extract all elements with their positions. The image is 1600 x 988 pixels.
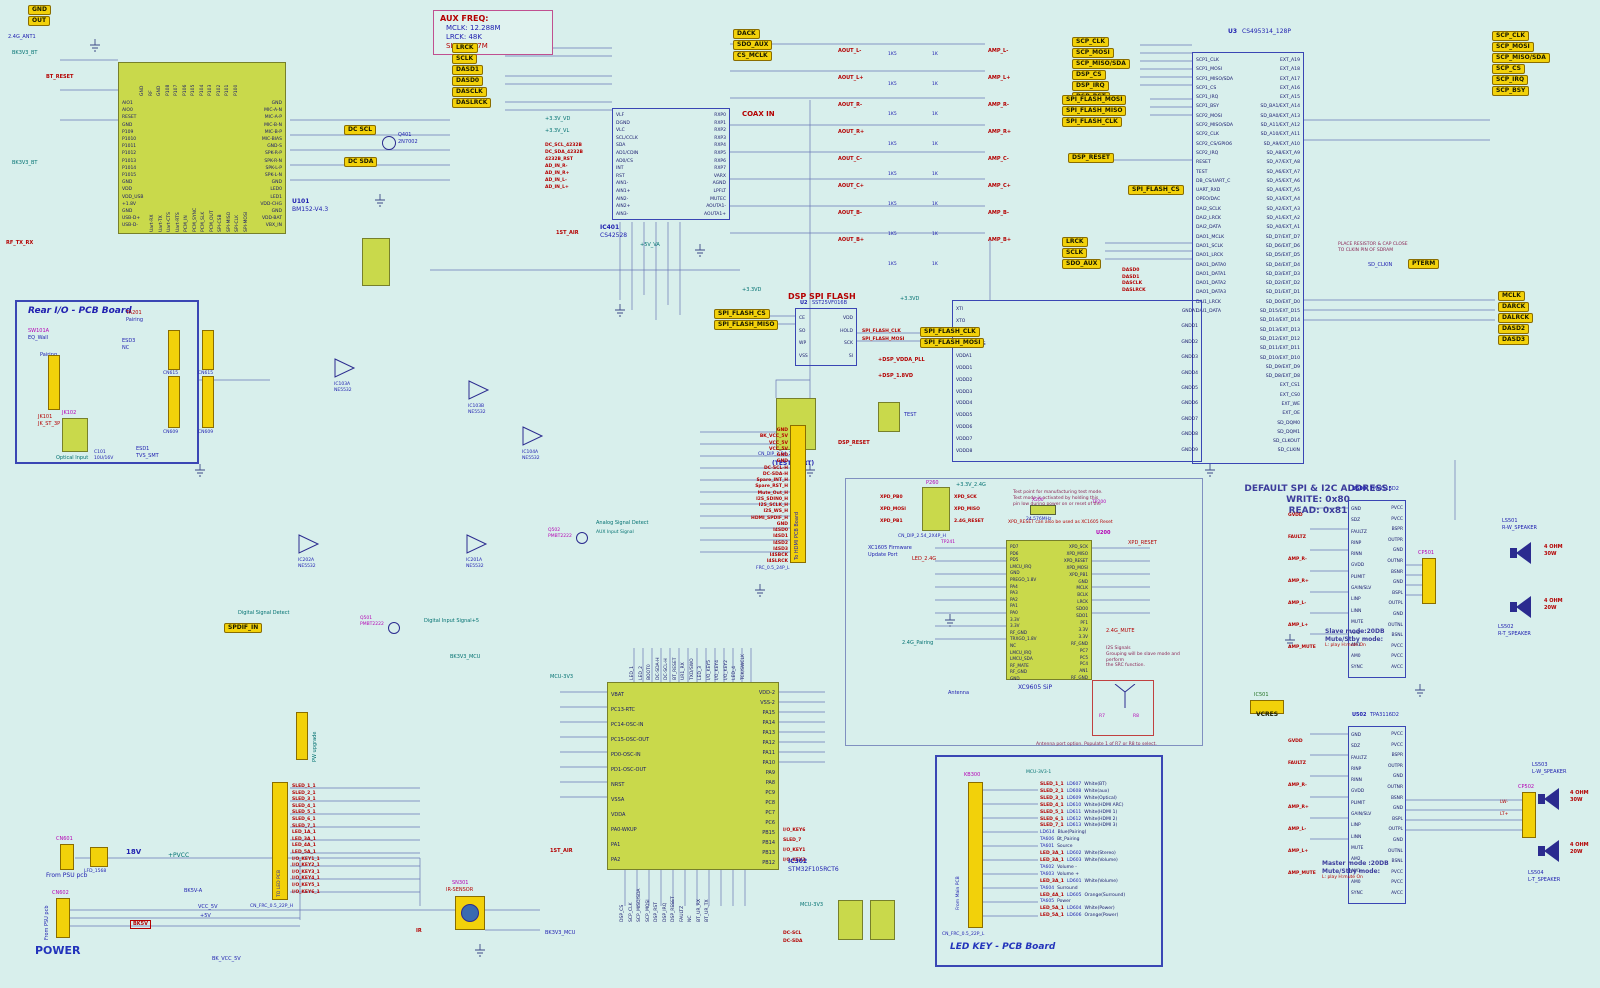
net-label: AMP_L+ <box>988 65 1011 92</box>
codec-pin: RXP3 <box>668 135 726 143</box>
xpd-reset-label: XPD_RESET <box>1128 540 1157 547</box>
bt-pin: RF <box>149 66 154 96</box>
ledkey-row: LED_5A_1LD606Orange(Power) <box>1040 913 1125 920</box>
audio-net-tags: LRCKSCLKDASD1DASD0DASCLKDASLRCK <box>452 42 491 109</box>
flash-part: SST25VF016B <box>812 300 847 307</box>
mcu-pin: PD1-OSC-OUT <box>611 763 649 778</box>
value-label: 1K5 <box>888 40 897 70</box>
net-tag: LRCK <box>1062 237 1088 247</box>
field-label: White(Volume) <box>1084 858 1117 863</box>
dsp-pin: SD_A6/EXT_A7 <box>1196 168 1300 177</box>
aux-freq-note: AUX FREQ: MCLK: 12.288M LRCK: 48K SLCK:3… <box>433 10 553 55</box>
field-ref: TA605 <box>1040 899 1054 904</box>
rf-pin: 3.3V <box>1010 627 1088 634</box>
value-label: 1K <box>932 190 938 220</box>
dsp-pin: VDDA1 <box>956 351 986 363</box>
flash-right-tags: SPI_FLASH_CLKSPI_FLASH_MOSI <box>920 326 984 349</box>
mcu-bk-label: BK3V3_MCU <box>450 654 480 661</box>
optical-jack <box>62 418 88 452</box>
bt-pin: GND <box>122 122 144 129</box>
bt-pin: P103 <box>208 66 213 96</box>
rf-pin: RF_GND <box>1010 641 1088 648</box>
bt-pin: GND-S <box>200 143 282 150</box>
codec-right-pins: RXP0RXP1RXP2RXP3RXP4RXP5RXP6RXP7VARXAGND… <box>668 112 726 218</box>
hdmi-conn: To HDMI PCB Board <box>790 425 806 563</box>
bt-pin: PCM_SYNC <box>193 196 198 232</box>
flash-right-pins: VDDHOLDSCKSI <box>799 313 853 363</box>
net-vlabel: BT_UR_RX <box>697 874 702 922</box>
field-ref: TA602 <box>1040 865 1054 870</box>
net-label: LED_4A_1 <box>292 843 320 850</box>
bt-rftxrx-label: RF_TX_RX <box>6 240 33 247</box>
mcu-pin: PA10 <box>697 758 775 768</box>
slave-mode-note: Slave mode:20DB Mute/Stby mode: L: play … <box>1325 628 1385 649</box>
amp-pin: BSNR <box>1351 794 1403 805</box>
i2s-note-3: the SRC function. <box>1106 663 1198 669</box>
amp-pin: BSPR <box>1351 525 1403 536</box>
dsp-audio-tags: LRCKSCLKSDO_AUX <box>1062 236 1101 270</box>
field-ld: LD606 <box>1067 913 1082 918</box>
field-label: Orange(Power) <box>1084 913 1118 918</box>
codec-pin: AIN2+ <box>616 203 638 211</box>
ls503-w: 30W <box>1570 797 1582 804</box>
net-tag: SPI_FLASH_MISO <box>1062 106 1126 116</box>
bt-pin: SPI-CLK <box>235 196 240 232</box>
bt-top-tags: GND OUT <box>28 4 51 27</box>
value-label: 1K <box>932 100 938 130</box>
net-vlabel: LED_2 <box>639 634 644 680</box>
ls503-ref: LS503 <box>1532 762 1548 769</box>
transistor-icon <box>388 622 400 634</box>
bt-pin: P100 <box>234 66 239 96</box>
amp-pin: OUTPL <box>1351 825 1403 836</box>
antenna-note: Antenna port option. Populate 1 of R7 or… <box>1036 742 1206 748</box>
bt-pin: USB-D- <box>122 222 144 229</box>
ta201-ref: TA201 <box>126 310 142 317</box>
net-label: 4232B_RST <box>545 156 583 163</box>
mcu-pin: PA8 <box>697 778 775 788</box>
net-tag: LRCK <box>452 43 478 53</box>
mcu-pin: PC14-OSC-IN <box>611 718 649 733</box>
dsp-right-pins: EXT_A19EXT_A18EXT_A17EXT_A16EXT_A15SD_BA… <box>1196 56 1300 456</box>
small-conn-2 <box>870 900 895 940</box>
c101-val: 10U/16V <box>94 456 113 462</box>
net-label: I/O_KEY4_1 <box>292 876 320 883</box>
mcu-pin: VDDA <box>611 808 649 823</box>
net-tag: PTERM <box>1408 259 1439 269</box>
bt-left-pins: AIO1AIO0RESETGNDP109P1010P1011P1012P1013… <box>122 100 144 230</box>
mcu-pin: PB13 <box>697 848 775 858</box>
opamp-part: NE5532 <box>298 564 320 570</box>
dsp-pin: SD_D4/EXT_D4 <box>1196 261 1300 270</box>
field-ld: LD602 <box>1067 851 1082 856</box>
bt-pin: MIC-B-N <box>200 122 282 129</box>
codec-pin: VARX <box>668 173 726 181</box>
net-vlabel: BOOT0 <box>647 634 652 680</box>
ir-ref: SN301 <box>452 880 468 887</box>
rf-pin: RF_GND <box>1010 675 1088 682</box>
net-tag: OUT <box>28 16 50 26</box>
amp-net-labels: AMP_L-AMP_L+AMP_R-AMP_R+AMP_C-AMP_C+AMP_… <box>988 38 1011 254</box>
field-net: SLED_6_1 <box>1040 817 1064 822</box>
value-label: 1K <box>932 250 938 280</box>
p260-conn-part: CN_DIP_2.54_2X4P_H <box>898 534 946 540</box>
mcu-pin: PA15 <box>697 708 775 718</box>
dsp-pin: EXT_A17 <box>1196 75 1300 84</box>
tp200-label: TP200 <box>1092 500 1106 506</box>
net-vlabel: LED_1 <box>630 634 635 680</box>
field-label: White(HDMI 3) <box>1084 823 1117 828</box>
field-label: Surround <box>1057 886 1078 891</box>
dsp-pin: SD_D9/EXT_D9 <box>1196 363 1300 372</box>
codec-pin: RXP6 <box>668 158 726 166</box>
cn615-conn-main <box>202 330 214 370</box>
dsp-pin: SD_BA0/EXT_A13 <box>1196 112 1300 121</box>
value-label: 1K5 <box>888 220 897 250</box>
field-label: Source <box>1057 844 1072 849</box>
rf-pin: PC4 <box>1010 661 1088 668</box>
r8-ref: R8 <box>1133 714 1153 720</box>
net-tag: SCP_MISO/SDA <box>1072 59 1130 69</box>
field-ld: LD608 <box>1067 789 1082 794</box>
sd-clkin-label: SD_CLKIN <box>1368 262 1392 269</box>
net-label: 2.4G_RESET <box>954 516 984 528</box>
dsp-pin: EXT_CS0 <box>1196 391 1300 400</box>
net-vlabel: DC-SDA-H <box>656 634 661 680</box>
codec-ref: IC401 <box>600 224 619 232</box>
dsp-pin: SD_D15/EXT_D15 <box>1196 307 1300 316</box>
net-label: AOUT_L+ <box>838 65 864 92</box>
net-label: LED_5A_1 <box>292 850 320 857</box>
aux-freq-lrck: LRCK: 48K <box>440 33 546 42</box>
rf-pin: XPD_MISO <box>1010 551 1088 558</box>
field-net: LED_3A_1 <box>1040 858 1064 863</box>
amp1-nets: GVDDFAULTZAMP_R-AMP_R+AMP_L-AMP_L+AMP_MU… <box>1288 505 1316 659</box>
esd1-val: TVS_SMT <box>136 453 159 460</box>
ls503-ohm: 4 OHM <box>1570 790 1589 797</box>
field-label: Volume + <box>1057 872 1079 877</box>
net-label: SPI_FLASH_MOSI <box>862 336 904 344</box>
amp-pin: BSNR <box>1351 568 1403 579</box>
net-label: SLED_1_1 <box>292 784 320 791</box>
field-ref: TA604 <box>1040 886 1054 891</box>
mcu-pin: VBAT <box>611 688 649 703</box>
speaker-icon <box>1510 542 1534 564</box>
q501-ref: Q501 <box>360 616 372 622</box>
net-label: AOUT_R+ <box>838 119 864 146</box>
cp502-ref: CP502 <box>1518 784 1534 791</box>
mcu-right-pins: VDD-2VSS-2PA15PA14PA13PA12PA11PA10PA9PA8… <box>697 688 775 868</box>
codec-pin: AGND <box>668 180 726 188</box>
speaker-icon <box>1538 788 1562 810</box>
net-label: I/O_KEY6 <box>783 826 805 836</box>
kb300-conn <box>968 782 983 928</box>
pw-upgrade-label: PW upgrade <box>312 712 319 762</box>
jk101-part: JK_ST_3P <box>38 421 60 428</box>
ledkey-row: SLED_4_1LD610White(HDMI ARC) <box>1040 803 1125 810</box>
amp-pin: GND <box>1351 610 1403 621</box>
value-label: 1K <box>932 160 938 190</box>
rf-33v-label: +3.3V_2.4G <box>956 482 986 489</box>
net-label: XPD_SCK <box>954 492 984 504</box>
jack-jk101 <box>48 355 60 410</box>
dsp-pin: GNDA1 <box>1100 304 1198 319</box>
bt-pin: P105 <box>191 66 196 96</box>
net-label: AMP_L+ <box>1288 841 1316 863</box>
net-label: GVDD <box>1288 731 1316 753</box>
net-label: AMP_MUTE <box>1288 863 1316 885</box>
net-tag: DSP_CS <box>1072 70 1106 80</box>
led-conn-signals: SLED_1_1SLED_2_1SLED_3_1SLED_4_1SLED_5_1… <box>292 784 320 896</box>
amp-pin: BSPL <box>1351 589 1403 600</box>
codec-pin: VLF <box>616 112 638 120</box>
field-label: Volume - <box>1057 865 1077 870</box>
ir-sig: IR <box>416 928 422 935</box>
net-label: I/O_KEY6_1 <box>292 890 320 897</box>
field-ld: LD603 <box>1067 858 1082 863</box>
bt-pin: USB-D+ <box>122 215 144 222</box>
dsp-pin: SD_CLKOUT <box>1196 437 1300 446</box>
ls501-ohm: 4 OHM <box>1544 544 1563 551</box>
bt-pin: GND <box>140 66 145 96</box>
amp-pin: OUTNL <box>1351 847 1403 858</box>
q401-part: 2N7002 <box>398 139 418 146</box>
cp501-conn <box>1422 558 1436 604</box>
net-tag: SCP_MOSI <box>1492 42 1534 52</box>
bt-top-pins: GNDRFGNDP108P107P106P105P104P103P102P101… <box>140 66 242 96</box>
field-ld: LD609 <box>1067 796 1082 801</box>
bt-pin: SPI-MISO <box>227 196 232 232</box>
u502-ref: U502 <box>1352 712 1367 719</box>
net-bkvcc5: BK_VCC_5V <box>212 956 241 963</box>
dsp-pin: SD_A2/EXT_A3 <box>1196 205 1300 214</box>
ledkey-row: TA603Volume + <box>1040 872 1125 879</box>
ls502-ohm: 4 OHM <box>1544 598 1563 605</box>
dsp-pin: SD_D11/EXT_D11 <box>1196 344 1300 353</box>
scp2-tags: SCP_CLKSCP_MOSISCP_MISO/SDASCP_CSSCP_IRQ… <box>1492 30 1550 97</box>
net-label: SLED_5_1 <box>292 810 320 817</box>
amp-pin: PVCC <box>1351 504 1403 515</box>
value-label: 1K <box>932 220 938 250</box>
mcu-pin: PA14 <box>697 718 775 728</box>
net-tag: DC SCL <box>344 125 376 135</box>
value-label: 1K5 <box>888 100 897 130</box>
net-label: XPD_PB1 <box>880 516 906 528</box>
field-net: SLED_1_1 <box>1040 782 1064 787</box>
net-label: LED_1A_1 <box>292 830 320 837</box>
field-net: LED_3A_1 <box>1040 851 1064 856</box>
dsp-pin: GNDD7 <box>1100 412 1198 427</box>
bt-pin: PCM_IN <box>184 196 189 232</box>
cn615-conn <box>168 330 180 370</box>
net-tag: SCLK <box>452 54 477 64</box>
flash-left-tags: SPI_FLASH_CSSPI_FLASH_MISO <box>714 308 778 331</box>
bt-bottom-pins: Uart-RXUart-TXUart-CTSUart-RTSPCM_INPCM_… <box>150 196 252 232</box>
opamp-icon <box>466 534 488 554</box>
bt-pin: MIC-A-P <box>200 114 282 121</box>
bt-pin: SPK-R-P <box>200 150 282 157</box>
bt-pin: AIO1 <box>122 100 144 107</box>
transistor-icon <box>382 136 396 150</box>
codec-pin: RST <box>616 173 638 181</box>
bt-pin: P1010 <box>122 136 144 143</box>
net-label: AOUT_C- <box>838 146 864 173</box>
net-vlabel: LED_3 <box>698 634 703 680</box>
rf-pin: GND <box>1010 579 1088 586</box>
bt-pin: VDD <box>122 186 144 193</box>
dsp-pin: SD_D14/EXT_D14 <box>1196 316 1300 325</box>
net-label: SPI_FLASH_CLK <box>862 328 904 336</box>
codec-top-tags: DACKSDO_AUXCS_MCLK <box>733 28 772 62</box>
bt-pin: P109 <box>122 129 144 136</box>
net-tag: SPI_FLASH_CLK <box>1062 117 1122 127</box>
net-label: AMP_R+ <box>988 119 1011 146</box>
mcu-pin: PC8 <box>697 798 775 808</box>
dsp-pin: EXT_A18 <box>1196 65 1300 74</box>
codec-net: +3.3V_VL <box>545 128 569 135</box>
cn601-conn <box>60 844 74 870</box>
dsp-ref: U3 <box>1228 28 1237 36</box>
dsp-pin: SD_A4/EXT_A5 <box>1196 186 1300 195</box>
net-label: I/O_KEY5_1 <box>292 883 320 890</box>
net-vlabel: DSP_RST <box>654 874 659 922</box>
codec-pin: RXP4 <box>668 142 726 150</box>
led-conn-label: TO LED PCB <box>277 787 283 897</box>
mcu-top-signals: LED_1LED_2BOOT0DC-SDA-HDC-SCL-HBT_RESETU… <box>630 634 749 680</box>
net-label: AMP_C+ <box>988 173 1011 200</box>
bt-ref: U101 <box>292 198 309 206</box>
dsp-pin: SD_D3/EXT_D3 <box>1196 270 1300 279</box>
net-label: AMP_L+ <box>1288 615 1316 637</box>
opamp-4: IC201A NE5532 <box>466 534 488 569</box>
net-vlabel: BT_RESET <box>673 634 678 680</box>
master-mode-line: L: play H:mute On <box>1322 875 1389 881</box>
fw-port-label-2: Update Port <box>868 552 898 559</box>
amp-pin: AVCC <box>1351 889 1403 900</box>
dsp-pin: SD_A11/EXT_A12 <box>1196 121 1300 130</box>
net-tag: DASLRCK <box>452 98 491 108</box>
field-net: LED_5A_1 <box>1040 906 1064 911</box>
res-values-2: 1K1K1K1K1K1K1K1K <box>932 40 938 280</box>
ledkey-row: LED_3A_1LD602White(Stereo) <box>1040 851 1125 858</box>
dsp-pin: EXT_CS1 <box>1196 381 1300 390</box>
u500-ref: U500 <box>1352 486 1367 493</box>
dsp-pin: VDDD4 <box>956 398 986 410</box>
ledkey-rows: SLED_1_1LD607White(BT)SLED_2_1LD608White… <box>1040 782 1125 920</box>
net-tag: DASD0 <box>452 76 483 86</box>
amp-pin: PVCC <box>1351 652 1403 663</box>
value-label: 1K5 <box>888 250 897 280</box>
bt-pin: P107 <box>174 66 179 96</box>
net-label: AMP_R- <box>1288 549 1316 571</box>
bt-pin: P1012 <box>122 150 144 157</box>
flash-right-nets: SPI_FLASH_CLKSPI_FLASH_MOSI <box>862 328 904 344</box>
field-ld: LD611 <box>1067 810 1082 815</box>
opamp-icon <box>468 380 490 400</box>
dsp-pin: SD_A8/EXT_A9 <box>1196 149 1300 158</box>
net-tag: DASD3 <box>1498 335 1529 345</box>
net-vlabel: BT_UR_TX <box>705 874 710 922</box>
res-values-1: 1K51K51K51K51K51K51K51K5 <box>888 40 897 280</box>
amp-pin: OUTPL <box>1351 599 1403 610</box>
hdmi-conn-part: FRC_0.5_24P_L <box>756 566 790 572</box>
net-label: AD_IN_L+ <box>545 184 583 191</box>
dsp-pin: SD_D2/EXT_D2 <box>1196 279 1300 288</box>
ir-sensor <box>455 896 485 930</box>
mute24g-label: 2.4G_MUTE <box>1106 628 1135 635</box>
rf-right-pins: XPD_SCKXPD_MISOXPD_RESETXPD_MOSIXPD_PB1G… <box>1010 544 1088 682</box>
p260-left-signals: XPD_PB0XPD_MOSIXPD_PB1 <box>880 492 906 528</box>
led-conn-part: CN_FRC_0.5_22P_H <box>250 904 293 910</box>
sw101a-ref: SW101A <box>28 328 49 335</box>
mcu-pin: PB12 <box>697 858 775 868</box>
ir-part: IR-SENSOR <box>446 887 473 894</box>
codec-pin: SDA <box>616 142 638 150</box>
net-label: AMP_L- <box>1288 819 1316 841</box>
field-ld: LD612 <box>1067 817 1082 822</box>
rf-pin: PC5 <box>1010 655 1088 662</box>
bt-part: BM152-V4.3 <box>292 206 328 214</box>
net-vlabel: UR1_RX <box>681 634 686 680</box>
x200-freq: 24.576MHz <box>1026 517 1051 523</box>
dc-scl-tag: DC SCL <box>344 124 376 136</box>
cn609-label-main: CN609 <box>198 430 213 436</box>
spi-flash-cs-tag: SPI_FLASH_CS <box>1128 184 1184 196</box>
speaker-icon <box>1538 840 1562 862</box>
jk101-ref: JK101 <box>38 414 52 421</box>
field-net: LED_4A_1 <box>1040 893 1064 898</box>
mcu-pin: PB15 <box>697 828 775 838</box>
dsp-pin: SD_DQM1 <box>1196 428 1300 437</box>
slave-mode-line: L: play H:mute On <box>1325 643 1385 649</box>
dsp-pin: GNDD8 <box>1100 427 1198 442</box>
codec-pin: AIN3- <box>616 211 638 219</box>
field-ld: LD605 <box>1067 893 1082 898</box>
rf-pin: AN1 <box>1010 668 1088 675</box>
field-label: White(Stereo) <box>1084 851 1115 856</box>
field-net: SLED_7_1 <box>1040 823 1064 828</box>
dsp-pin: SD_BA1/EXT_A14 <box>1196 102 1300 111</box>
net-label: AOUT_B- <box>838 200 864 227</box>
codec-part: CS42528 <box>600 232 627 240</box>
ls504-ohm: 4 OHM <box>1570 842 1589 849</box>
pwr-label: +3.3VD <box>742 287 761 294</box>
bt-pin: GND <box>122 208 144 215</box>
net-tag: SPI_FLASH_CLK <box>920 327 980 337</box>
net-label: AD_IN_R- <box>545 163 583 170</box>
dsp-pin: VDDD5 <box>956 410 986 422</box>
net-tag: GND <box>28 5 51 15</box>
lt-net: LT+ <box>1500 812 1508 818</box>
net-label: AMP_MUTE <box>1288 637 1316 659</box>
pwr-label: +3.3VD <box>900 296 919 303</box>
net-label: DC_SCL_4232B <box>545 142 583 149</box>
net-label: XPD_MOSI <box>880 504 906 516</box>
flash-pin: VDD <box>799 313 853 326</box>
dsp-pin: SD_A1/EXT_A2 <box>1196 214 1300 223</box>
net-vcc5: VCC_5V <box>198 904 218 911</box>
codec-pin: INT <box>616 165 638 173</box>
field-label: White(Volume) <box>1084 879 1117 884</box>
codec-pin: MUTEC <box>668 196 726 204</box>
ledkey-row: LED_3A_1LD603White(Volume) <box>1040 858 1125 865</box>
net-tag: SDO_AUX <box>1062 259 1101 269</box>
bt-reset-label: BT_RESET <box>46 74 73 81</box>
dsp-pin: VDDD1 <box>956 363 986 375</box>
bt-pin: P1014 <box>122 165 144 172</box>
value-label: 1K <box>932 70 938 100</box>
flash-ref: U2 <box>800 300 808 307</box>
